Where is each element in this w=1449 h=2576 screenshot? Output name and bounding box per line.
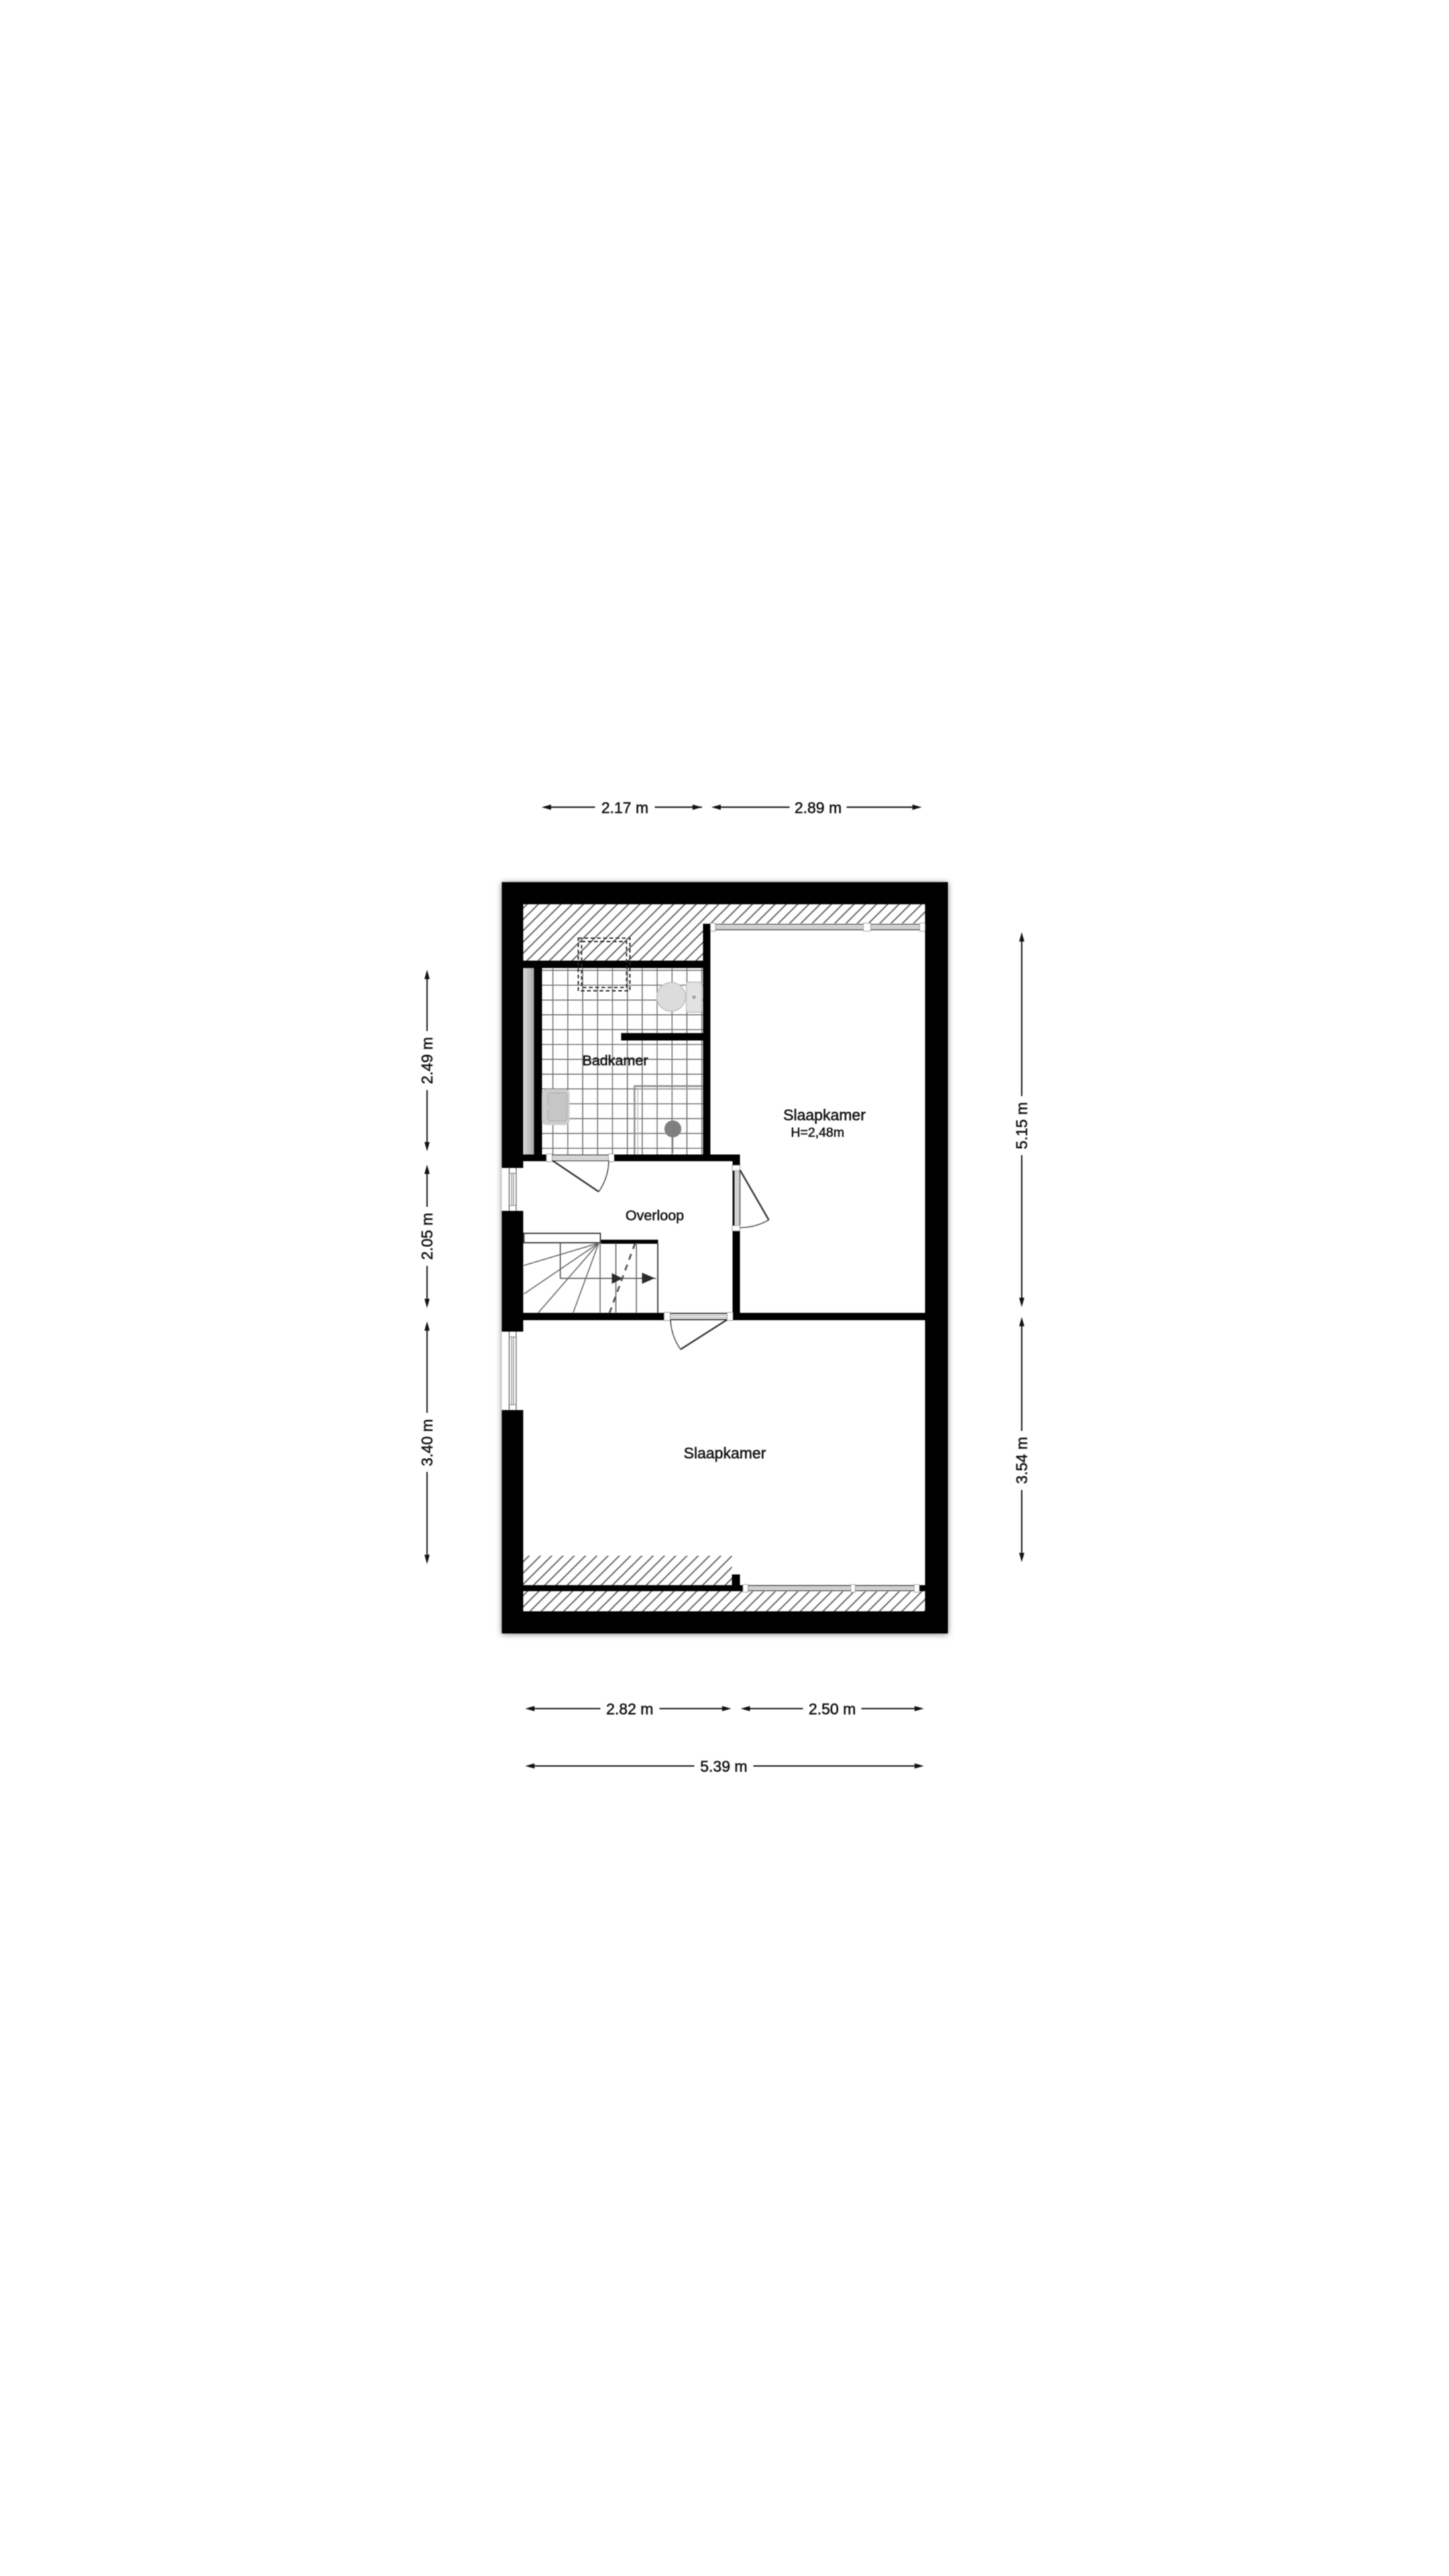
- svg-text:Badkamer: Badkamer: [582, 1053, 648, 1069]
- svg-text:3.40 m: 3.40 m: [419, 1419, 436, 1466]
- svg-text:Slaapkamer: Slaapkamer: [784, 1106, 866, 1124]
- svg-text:H=2,48m: H=2,48m: [791, 1126, 845, 1140]
- svg-text:5.15 m: 5.15 m: [1013, 1102, 1030, 1149]
- svg-text:2.17 m: 2.17 m: [601, 799, 648, 816]
- svg-text:2.49 m: 2.49 m: [419, 1037, 436, 1084]
- svg-text:2.50 m: 2.50 m: [808, 1701, 855, 1718]
- svg-text:3.54 m: 3.54 m: [1013, 1437, 1030, 1484]
- svg-text:2.05 m: 2.05 m: [419, 1213, 436, 1260]
- svg-text:2.82 m: 2.82 m: [606, 1701, 653, 1718]
- svg-text:Slaapkamer: Slaapkamer: [684, 1444, 766, 1462]
- svg-text:5.39 m: 5.39 m: [700, 1758, 747, 1775]
- svg-text:Overloop: Overloop: [625, 1207, 684, 1224]
- svg-text:2.89 m: 2.89 m: [794, 799, 841, 816]
